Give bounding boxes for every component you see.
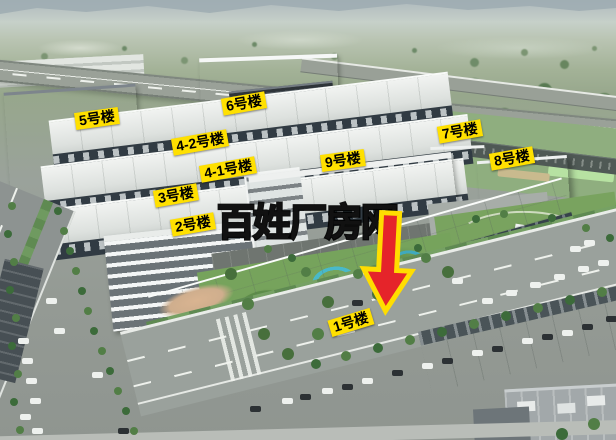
down-arrow-icon [353,208,422,317]
left-edge-building [0,259,44,383]
aerial-photo: 5号楼 6号楼 4-2号楼 4-1号楼 9号楼 7号楼 8号楼 3号楼 2号楼 … [0,0,616,440]
parked-cars-dark [0,0,11,6]
mountain-ridge [0,0,616,20]
